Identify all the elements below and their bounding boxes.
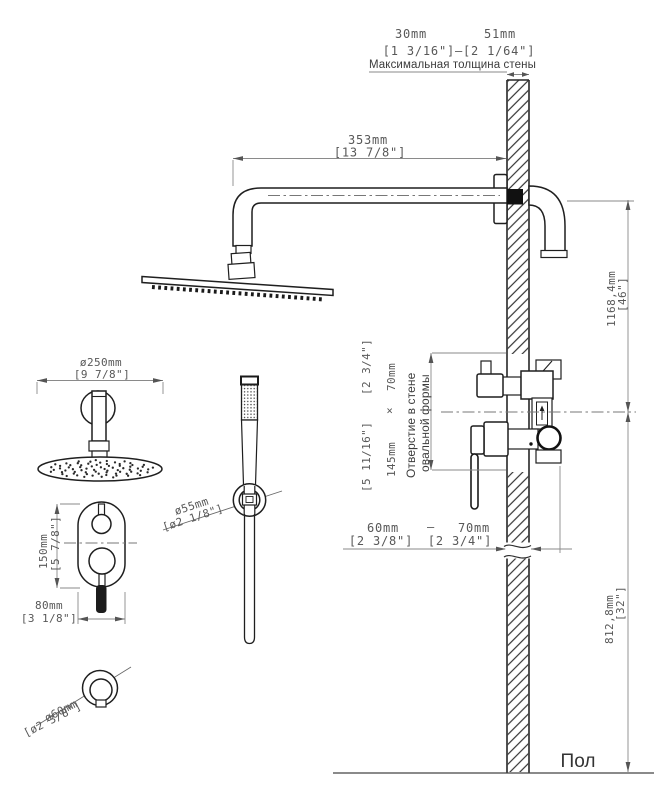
wall-break <box>503 543 531 559</box>
dim-hole-height-mm: 145mm <box>385 442 398 477</box>
arrowhead <box>115 617 125 622</box>
handheld-shower: ø55mm [ø2 1/8"] <box>161 377 282 644</box>
arm-wall-anchor <box>507 189 523 205</box>
wall-section <box>507 80 529 773</box>
max-wall-label: Максимальная толщина стены <box>369 59 536 71</box>
outlet-tab <box>96 700 106 707</box>
wall-hatch-lower <box>508 472 528 772</box>
valve-main-body <box>521 371 553 399</box>
handle-lever-side <box>471 454 478 509</box>
rain-head-face <box>38 457 162 481</box>
mixer-diverter-knob <box>92 515 111 534</box>
arrowhead <box>507 72 514 77</box>
valve-outlet-ring <box>538 427 561 450</box>
rain-head-side <box>142 277 333 300</box>
dim-outlet-in: [ø2 3/8"] <box>21 699 83 739</box>
dim-depth-dash: — <box>427 520 435 534</box>
elbow-pipe-behind-wall <box>529 186 565 251</box>
wand-spray-face <box>242 385 258 421</box>
dim-hole-times: × <box>383 407 396 414</box>
dim-wall-max: 51mm <box>484 27 516 41</box>
valve-lower-block <box>536 450 561 463</box>
dim-depth-min-in: [2 3/8"] <box>349 534 413 548</box>
arrowhead <box>153 378 163 383</box>
dim-mixer-width-in: [3 1/8"] <box>21 612 77 625</box>
dim-mixer-width-mm: 80mm <box>35 599 63 612</box>
arrowhead <box>626 402 631 412</box>
floor-label: Пол <box>561 751 596 772</box>
dim-hole-width-in: [2 3/4"] <box>360 339 373 395</box>
arrowhead <box>496 156 506 161</box>
arrowhead <box>531 547 541 552</box>
dim-heights: 1168,4mm [46"] 812,8mm [32"] <box>567 200 634 772</box>
dim-depth-max-in: [2 3/4"] <box>428 534 492 548</box>
wand-top-cap <box>241 377 258 385</box>
dim-upper-in: [46"] <box>616 277 629 312</box>
arrowhead <box>429 353 434 363</box>
rain-head-front <box>38 391 162 481</box>
hole-label-line1: Отверстие в стене <box>404 372 418 478</box>
valve-screw-dot <box>529 442 532 445</box>
handle-hub-side <box>471 426 484 454</box>
arrowhead <box>55 504 60 514</box>
elbow-pipe-end <box>541 251 567 258</box>
mixer-trim-front <box>64 502 137 613</box>
arrowhead <box>626 200 631 210</box>
arm-tube <box>233 188 507 246</box>
dim-wall-min: 30mm <box>395 27 427 41</box>
handle-plate-side <box>484 422 508 456</box>
dim-hole-height-in: [5 11/16"] <box>360 422 373 492</box>
bracket-clamp <box>243 494 257 505</box>
arrowhead <box>55 578 60 588</box>
mixer-lever <box>96 585 107 613</box>
diverter-stem-side <box>481 361 491 375</box>
dim-lower-in: [32"] <box>614 586 627 621</box>
arrowhead <box>37 378 47 383</box>
outlet-inner-ring <box>90 679 112 701</box>
floor: Пол <box>333 751 654 773</box>
dim-wall-thickness: 30mm 51mm [1 3/16"]—[2 1/64"] Максимальн… <box>369 27 536 77</box>
valve-wall-connector <box>502 377 521 395</box>
hole-label-line2: овальной формы <box>418 374 432 472</box>
dim-arm-in: [13 7/8"] <box>334 146 406 160</box>
dim-head-diameter: ø250mm [9 7/8"] <box>37 356 163 394</box>
arrowhead <box>522 72 529 77</box>
arrowhead <box>626 762 631 772</box>
dim-hole-width-mm: 70mm <box>385 363 398 391</box>
mixer-valve-side <box>441 360 636 509</box>
arrowhead <box>626 412 631 422</box>
dim-depth-max: 70mm <box>458 521 490 535</box>
dim-depth-min: 60mm <box>367 521 399 535</box>
dim-wall-in: [1 3/16"]—[2 1/64"] <box>383 44 535 58</box>
wall-hatch-upper <box>508 80 528 354</box>
wand-body <box>242 420 258 485</box>
arrowhead <box>78 617 88 622</box>
arrowhead <box>233 156 243 161</box>
valve-spindle <box>507 429 538 449</box>
dim-head-in: [9 7/8"] <box>74 368 130 381</box>
dim-valve-depth: 60mm — 70mm [2 3/8"] [2 3/4"] <box>343 466 572 553</box>
wall-outlet-front: ø60mm [ø2 3/8"] <box>21 667 131 740</box>
front-joint-1 <box>89 441 109 451</box>
dim-mixer-height-in: [5 7/8"] <box>49 516 62 572</box>
swivel-joint-base <box>228 263 255 280</box>
diverter-knob-side <box>477 374 503 397</box>
technical-drawing: Пол ø5 <box>0 0 654 800</box>
dim-arm-length: 353mm [13 7/8"] <box>233 133 506 186</box>
mixer-handle-hub <box>89 548 115 574</box>
shower-hose <box>245 514 255 644</box>
front-arm <box>92 391 106 441</box>
